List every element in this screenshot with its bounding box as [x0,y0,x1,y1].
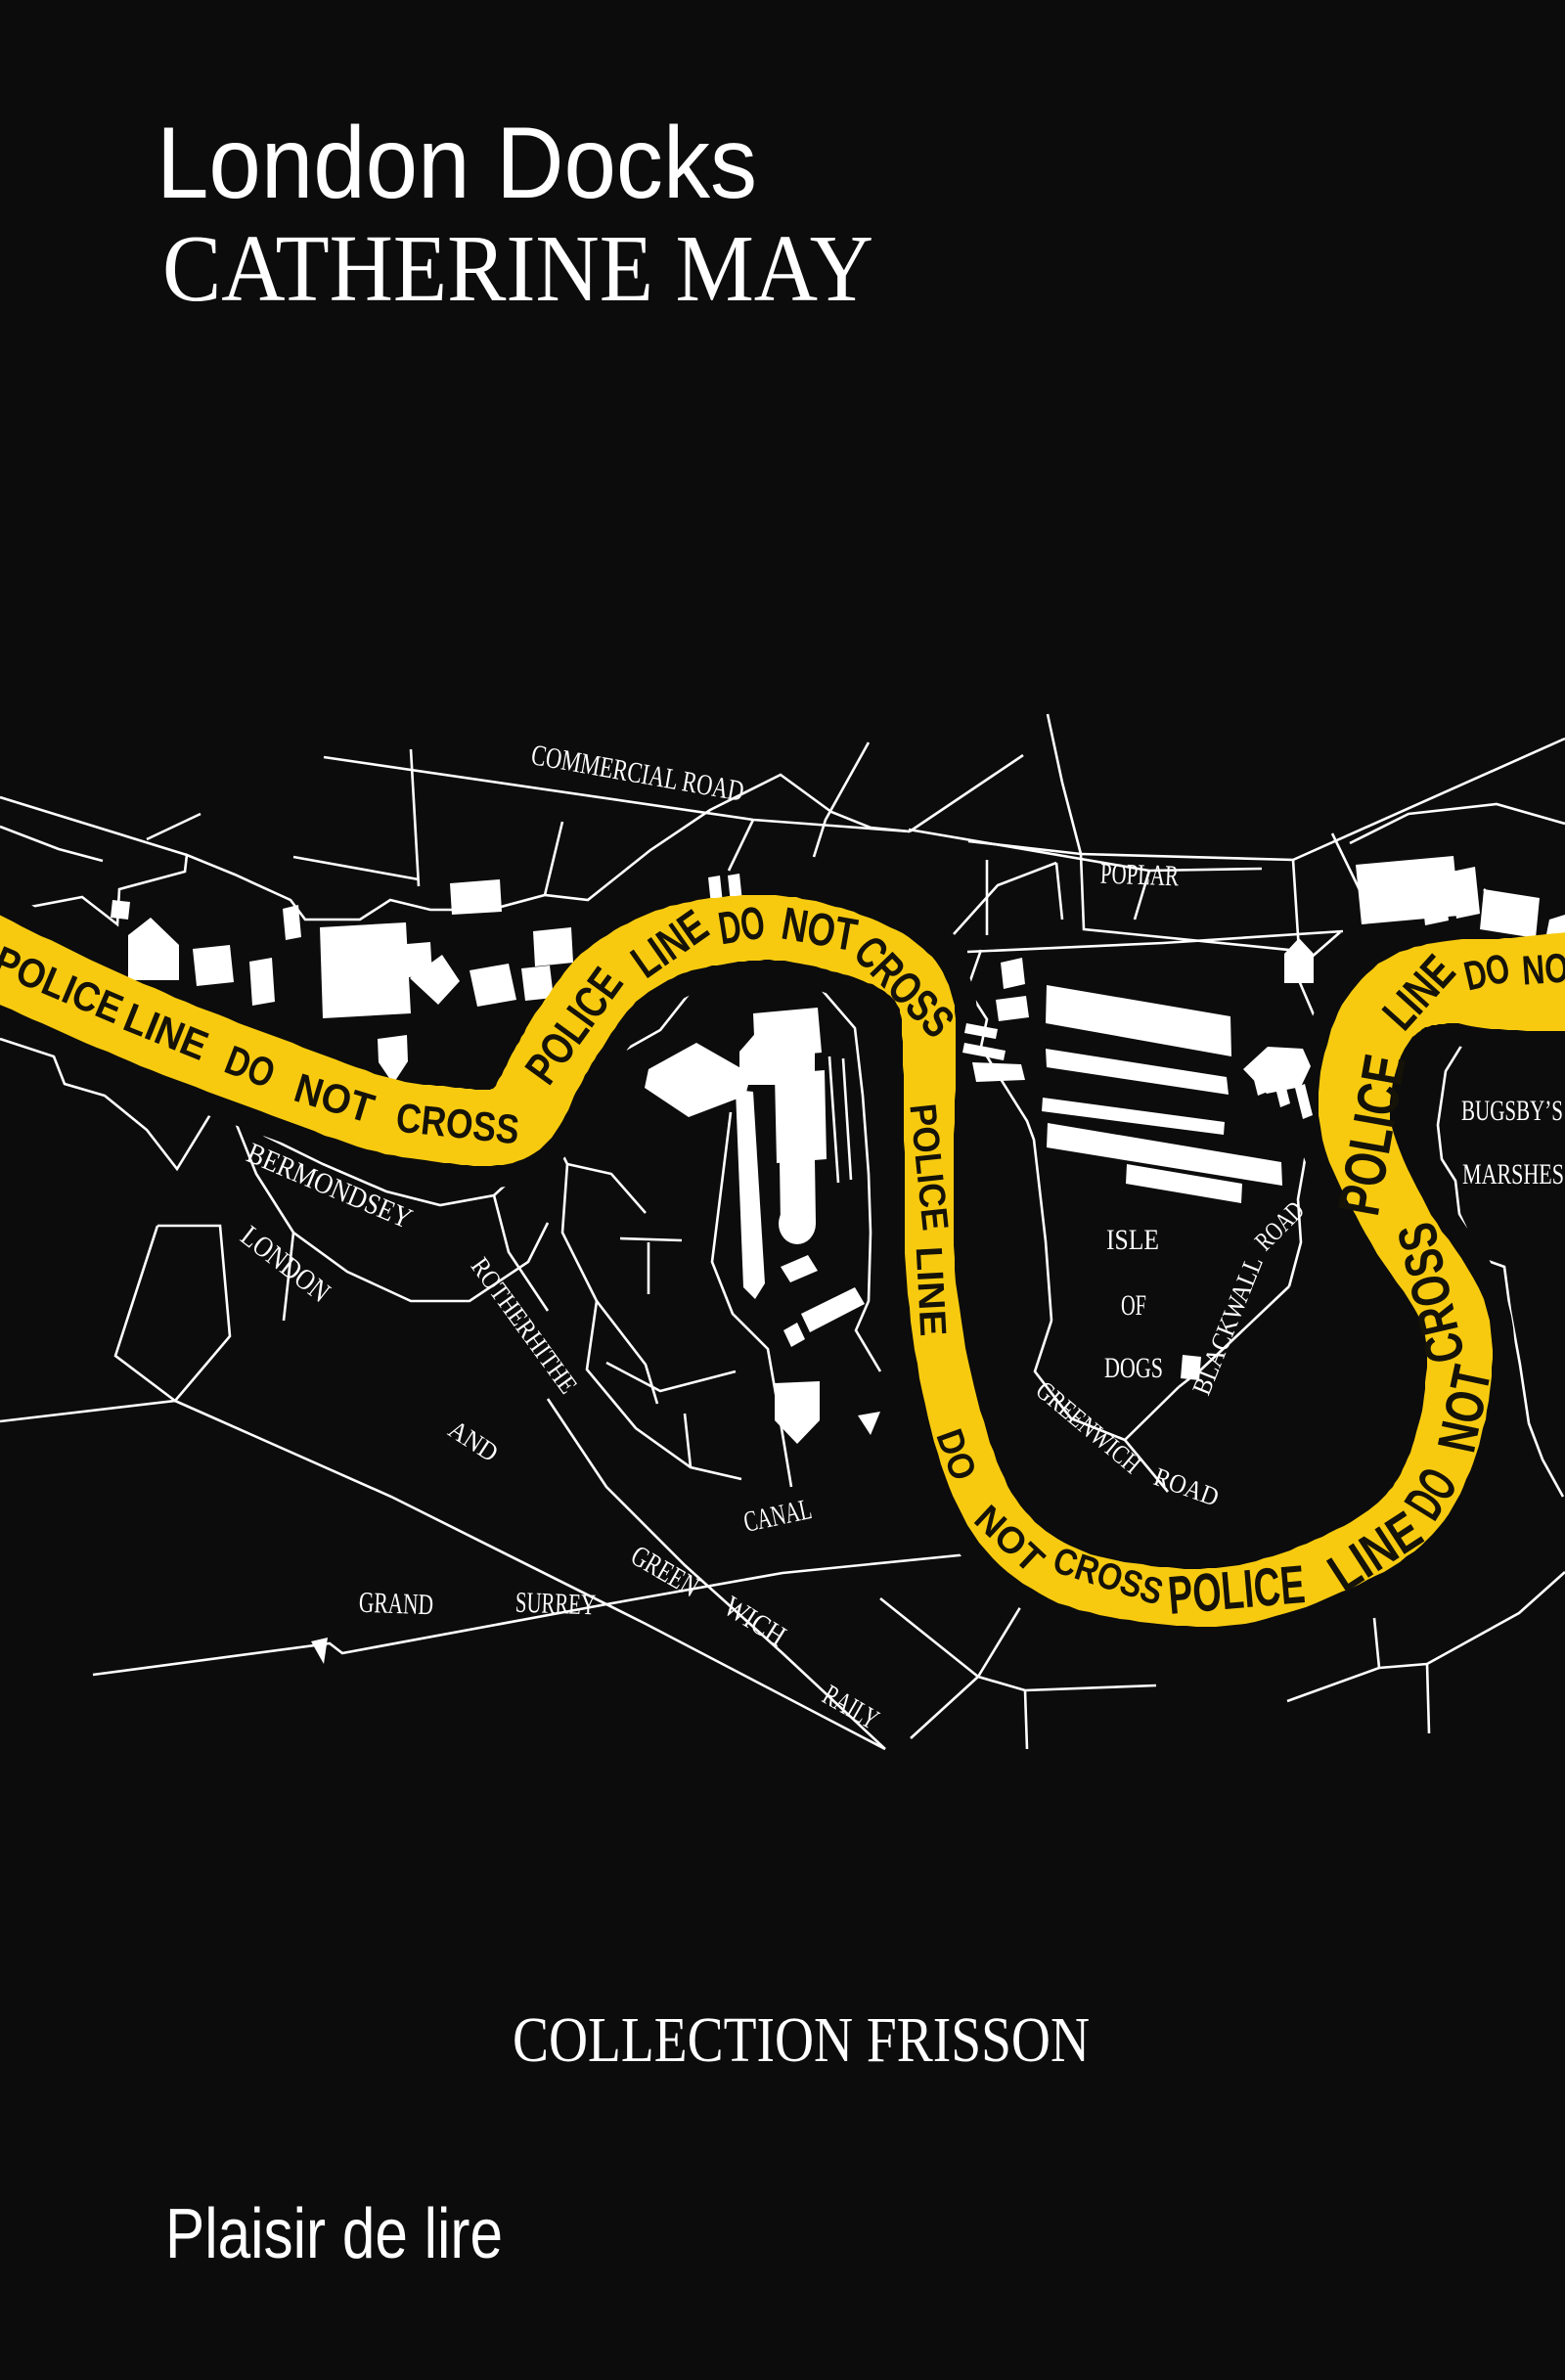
svg-text:COLLECTION FRISSON: COLLECTION FRISSON [513,2004,1090,2076]
svg-text:LINE: LINE [908,1245,954,1337]
svg-text:SURREY: SURREY [514,1587,596,1622]
svg-text:POPLAR: POPLAR [1099,858,1179,893]
svg-text:DOGS: DOGS [1104,1352,1163,1384]
svg-text:London Docks: London Docks [156,107,757,220]
svg-text:Plaisir de lire: Plaisir de lire [165,2195,503,2273]
svg-text:NO: NO [1520,944,1565,993]
svg-text:ISLE: ISLE [1106,1224,1159,1256]
svg-text:OF: OF [1121,1289,1146,1322]
svg-text:POLICE: POLICE [1166,1553,1308,1626]
svg-text:GRAND: GRAND [358,1587,433,1622]
svg-text:CATHERINE MAY: CATHERINE MAY [162,216,873,321]
svg-text:MARSHES: MARSHES [1462,1158,1564,1190]
svg-text:DO: DO [715,896,769,955]
svg-text:BUGSBY’S: BUGSBY’S [1461,1095,1563,1127]
